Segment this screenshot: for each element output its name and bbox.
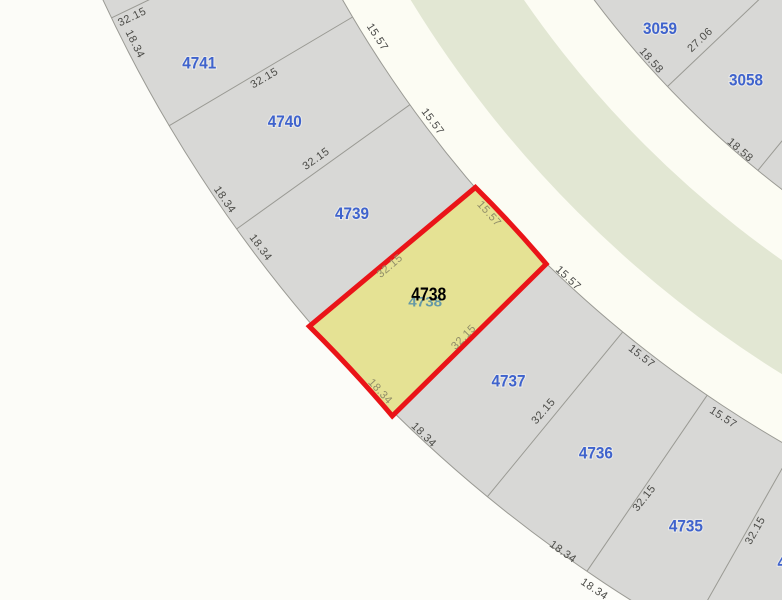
svg-text:4739: 4739 bbox=[335, 205, 369, 223]
svg-text:3059: 3059 bbox=[643, 20, 677, 38]
svg-text:4741: 4741 bbox=[182, 55, 216, 73]
svg-text:4734: 4734 bbox=[778, 554, 782, 572]
svg-text:4740: 4740 bbox=[268, 113, 302, 131]
svg-text:4737: 4737 bbox=[492, 373, 526, 391]
svg-text:3058: 3058 bbox=[729, 71, 763, 89]
svg-text:4738: 4738 bbox=[411, 283, 446, 304]
svg-text:4735: 4735 bbox=[669, 518, 703, 536]
svg-text:4736: 4736 bbox=[579, 445, 613, 463]
